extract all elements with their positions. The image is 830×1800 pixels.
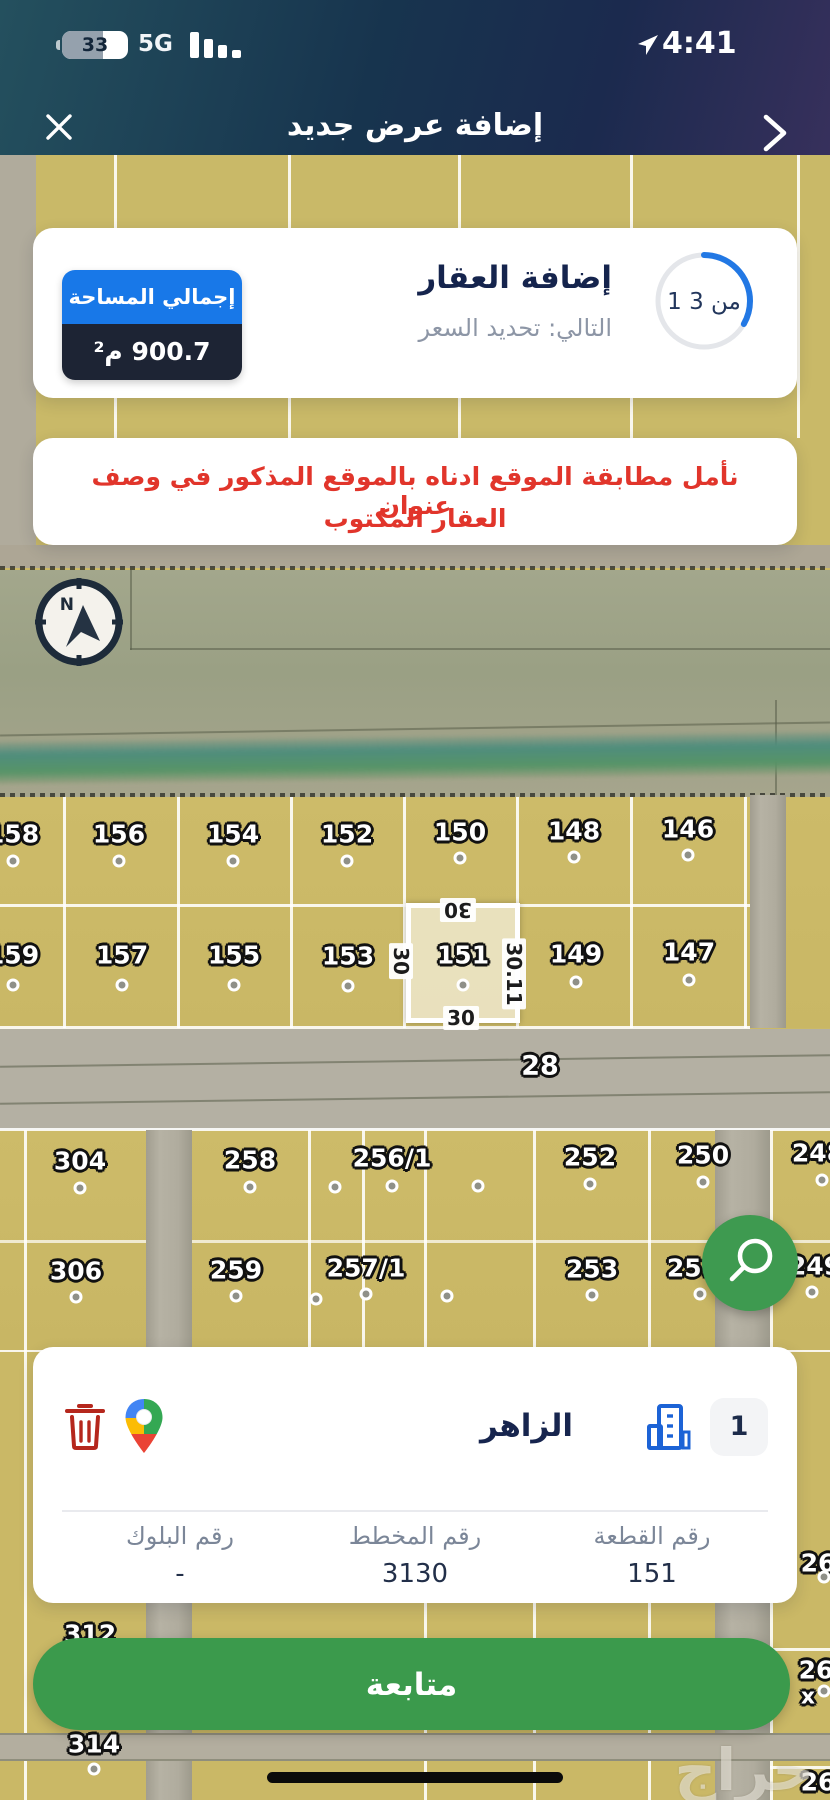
parcel-label-256-1: 256/1 — [353, 1144, 432, 1173]
street-number-label: 28 — [521, 1051, 559, 1082]
card-subtitle: التالي: تحديد السعر — [419, 314, 612, 342]
map-search-button[interactable] — [702, 1215, 798, 1311]
parcel-dot — [88, 1763, 101, 1776]
total-area-label: إجمالي المساحة — [62, 270, 242, 324]
compass: N — [34, 577, 124, 667]
parcel-dot — [228, 979, 241, 992]
progress-step-text: 1 من 3 — [650, 289, 758, 315]
location-details-card: 1 الزاهر — [33, 1347, 797, 1603]
parcel-label-158: 158 — [0, 820, 39, 849]
parcel-dot — [586, 1289, 599, 1302]
parcel-label-152: 152 — [321, 820, 373, 849]
watermark-logo: حراج — [674, 1736, 814, 1800]
parcel-dot — [227, 855, 240, 868]
parcel-label-304: 304 — [54, 1147, 106, 1176]
parcel-label-157: 157 — [96, 941, 148, 970]
parcel-dot — [816, 1174, 829, 1187]
parcel-label-26: 26 — [799, 1656, 830, 1685]
back-chevron-button[interactable] — [752, 112, 792, 156]
parcel-dot — [818, 1571, 830, 1584]
listing-index-badge: 1 — [710, 1398, 768, 1456]
parcel-dot — [806, 1286, 819, 1299]
signal-bars-icon — [190, 31, 248, 58]
search-icon — [702, 1215, 798, 1311]
parcel-label-156: 156 — [93, 820, 145, 849]
parcel-dot — [454, 852, 467, 865]
parcel-dot — [244, 1181, 257, 1194]
field-value-parcel: 151 — [627, 1559, 677, 1589]
google-maps-pin-icon — [123, 1397, 165, 1455]
dimension-top: 30 — [440, 898, 476, 922]
battery-icon: 33 — [62, 31, 128, 59]
parcel-dot — [7, 855, 20, 868]
parcel-label-149: 149 — [550, 940, 602, 969]
total-area-value: 900.7 م² — [62, 324, 242, 380]
parcel-label-153: 153 — [322, 942, 374, 971]
parcel-label-147: 147 — [663, 938, 715, 967]
parcel-dot — [683, 974, 696, 987]
parcel-label-257-1: 257/1 — [327, 1254, 406, 1283]
parcel-dot — [70, 1291, 83, 1304]
parcel-dot — [457, 979, 470, 992]
parcel-label-148: 148 — [548, 817, 600, 846]
dimension-right: 30.11 — [502, 938, 526, 1009]
parcel-label-306: 306 — [50, 1257, 102, 1286]
parcel-dot — [113, 855, 126, 868]
location-warning-card: نأمل مطابقة الموقع ادناه بالموقع المذكور… — [33, 438, 797, 545]
progress-ring: 1 من 3 — [650, 247, 758, 355]
parcel-label-248: 248 — [792, 1139, 830, 1168]
parcel-dot — [341, 855, 354, 868]
field-value-block: - — [175, 1559, 184, 1589]
parcel-dot — [360, 1288, 373, 1301]
parcel-dot — [7, 979, 20, 992]
parcel-dot — [697, 1176, 710, 1189]
battery-nub — [56, 40, 60, 50]
field-label-plan: رقم المخطط — [349, 1522, 481, 1550]
parcel-dot — [342, 980, 355, 993]
parcel-label-259: 259 — [210, 1256, 262, 1285]
compass-north-letter: N — [60, 595, 74, 615]
parcel-dot — [329, 1181, 342, 1194]
phone-screen: N 30 30 30.11 30 15815615415215014814615… — [0, 0, 830, 1800]
parcel-dot — [682, 849, 695, 862]
parcel-label-252: 252 — [564, 1143, 616, 1172]
parcel-label-253: 253 — [566, 1255, 618, 1284]
continue-button[interactable]: متابعة — [33, 1638, 790, 1730]
parcel-label-154: 154 — [207, 820, 259, 849]
map-close-marker: x — [801, 1685, 815, 1710]
street-28 — [0, 1029, 830, 1130]
road-right-north — [750, 795, 786, 1028]
district-name: الزاهر — [480, 1408, 573, 1444]
parcel-label-146: 146 — [662, 815, 714, 844]
field-label-block: رقم البلوك — [126, 1522, 234, 1550]
parcel-dot — [584, 1178, 597, 1191]
card-title: إضافة العقار — [418, 260, 612, 296]
status-time: 4:41 — [662, 26, 737, 61]
home-indicator[interactable] — [267, 1772, 563, 1783]
parcel-label-159: 159 — [0, 941, 39, 970]
header-bar: 33 5G 4:41 إضافة عرض جديد — [0, 0, 830, 155]
parcel-label-150: 150 — [434, 818, 486, 847]
parcel-label-250: 250 — [677, 1141, 729, 1170]
parcel-dot — [570, 976, 583, 989]
parcel-dot — [74, 1182, 87, 1195]
field-label-parcel: رقم القطعة — [594, 1522, 711, 1550]
parcel-dot — [386, 1180, 399, 1193]
location-arrow-icon — [637, 34, 659, 60]
google-maps-button[interactable] — [123, 1397, 165, 1455]
field-value-plan: 3130 — [382, 1559, 448, 1589]
parcel-dot — [441, 1290, 454, 1303]
parcel-label-155: 155 — [208, 941, 260, 970]
parcel-label-151: 151 — [437, 941, 489, 970]
dimension-bottom: 30 — [443, 1006, 479, 1030]
parcel-dot — [568, 851, 581, 864]
page-title: إضافة عرض جديد — [0, 108, 830, 143]
building-icon — [645, 1402, 691, 1456]
network-type: 5G — [138, 31, 173, 57]
parcel-label-258: 258 — [224, 1146, 276, 1175]
map-left-road — [0, 155, 36, 568]
battery-percent: 33 — [62, 31, 128, 59]
total-area-badge: إجمالي المساحة 900.7 م² — [62, 270, 242, 380]
parcel-dot — [116, 979, 129, 992]
trash-icon — [63, 1401, 107, 1451]
parcel-dot — [472, 1180, 485, 1193]
card-divider — [62, 1510, 768, 1512]
parcel-dot — [818, 1685, 830, 1698]
close-button[interactable] — [40, 110, 76, 146]
delete-location-button[interactable] — [63, 1401, 107, 1451]
parcel-dot — [310, 1293, 323, 1306]
parcel-dot — [230, 1290, 243, 1303]
parcel-label-314: 314 — [68, 1730, 120, 1759]
warning-text-line2: العقار المكتوب — [65, 504, 765, 533]
dimension-left: 30 — [389, 943, 413, 979]
